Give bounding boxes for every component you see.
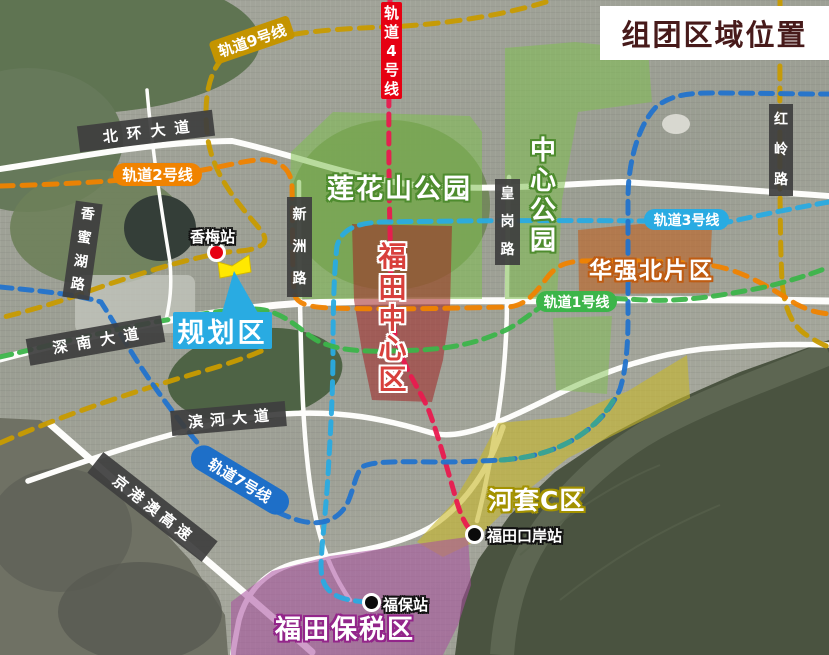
area-label-zhongxin-park: 中心公园 xyxy=(528,137,558,257)
road-label-hongling: 红岭路 xyxy=(769,104,793,196)
rail-label-line3: 轨道3号线 xyxy=(644,209,729,230)
area-label-futian-center: 福田中心区 xyxy=(377,242,408,396)
rail-label-line2: 轨道2号线 xyxy=(113,163,202,186)
area-label-lianhuashan: 莲花山公园 xyxy=(327,167,472,206)
station-label-xiangmei: 香梅站 xyxy=(190,226,235,247)
station-label-futiankouan: 福田口岸站 xyxy=(487,525,562,546)
area-label-huaqiangbei: 华强北片区 xyxy=(589,251,714,285)
station-dot-futiankouan xyxy=(465,525,484,544)
road-label-xinzhou: 新洲路 xyxy=(287,197,312,297)
road-label-huanggang: 皇岗路 xyxy=(495,179,520,265)
rail-label-line4: 轨道4号线 xyxy=(381,2,402,99)
planning-callout-pointer xyxy=(221,271,258,316)
area-label-hetao-c: 河套C区 xyxy=(488,481,585,517)
map-canvas: 组团区域位置 轨道9号线 轨道4号线 轨道2号线 轨道3号线 轨道1号线 轨道7… xyxy=(0,0,829,655)
station-label-fubao: 福保站 xyxy=(383,594,428,615)
rail-label-line1: 轨道1号线 xyxy=(536,291,617,312)
map-title-box: 组团区域位置 xyxy=(600,6,829,60)
stadium xyxy=(662,114,690,134)
map-title: 组团区域位置 xyxy=(621,12,807,54)
planning-area-callout: 规划区 xyxy=(173,312,272,349)
area-overlay-zhongxin-south xyxy=(553,316,612,394)
station-dot-fubao xyxy=(362,593,381,612)
planning-area-label: 规划区 xyxy=(178,311,268,350)
